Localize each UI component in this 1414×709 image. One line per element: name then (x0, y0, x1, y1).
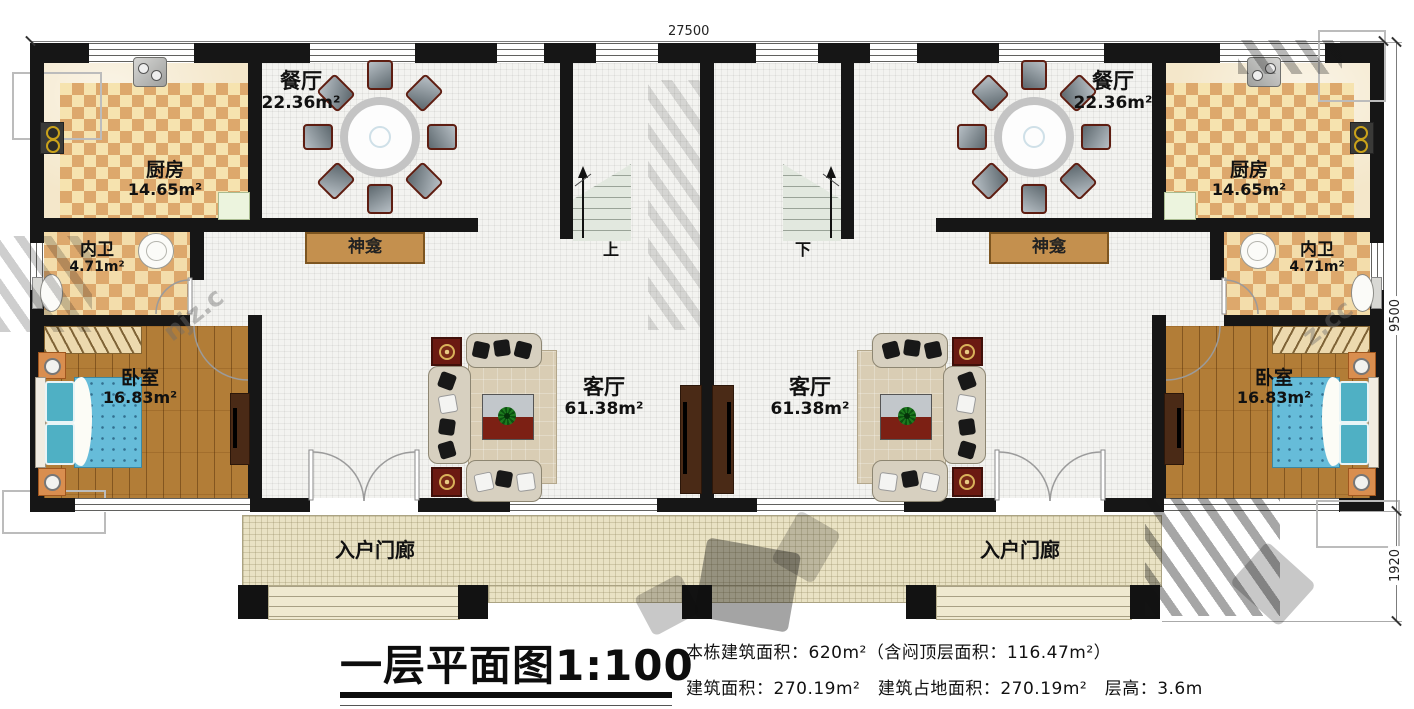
shrine-label: 神龛 (348, 238, 382, 257)
bed-headboard (1368, 377, 1379, 468)
dim-ext (1162, 621, 1402, 622)
porch-label-right: 入户门廊 (950, 534, 1090, 563)
dining-window (310, 43, 415, 63)
top-wall (194, 43, 310, 63)
bedroom-window (1164, 498, 1339, 512)
nightstand (38, 468, 66, 496)
room-label-bath: 内卫4.71m² (1267, 241, 1367, 276)
top-wall (917, 43, 999, 63)
bath-side-wall (1210, 232, 1224, 280)
dining-table (340, 97, 420, 177)
dim-top-value: 27500 (665, 24, 712, 39)
shrine-label: 神龛 (1032, 238, 1066, 257)
side-table (952, 337, 983, 366)
stair-wall (560, 43, 573, 239)
nightstand (1348, 468, 1376, 496)
porch-column (238, 585, 268, 619)
bath-side-wall (190, 232, 204, 280)
sofa-bottom (872, 460, 948, 502)
building-info-line2: 建筑面积：270.19m² 建筑占地面积：270.19m² 层高：3.6m (686, 674, 1203, 699)
shrine: 神龛 (989, 232, 1109, 264)
side-table (952, 467, 983, 497)
porch-steps-right (936, 585, 1132, 620)
title-underline-thin (340, 705, 672, 706)
nightstand (38, 352, 66, 379)
top-wall (707, 43, 756, 63)
hall-window (870, 43, 917, 63)
living-tv (727, 402, 731, 474)
side-table (431, 467, 462, 497)
bottom-wall (250, 498, 310, 512)
side-table (431, 337, 462, 366)
nightstand (1348, 352, 1376, 379)
bedroom-tv-cabinet (1164, 393, 1184, 465)
bottom-wall (707, 498, 757, 512)
dim-right-main-value: 9500 (1388, 296, 1403, 335)
top-wall (1104, 43, 1220, 63)
sofa-bottom (466, 460, 542, 502)
mid-wall (30, 218, 478, 232)
kitchen-sink (1247, 57, 1281, 87)
dim-ext (1340, 511, 1402, 512)
sofa-side (943, 366, 986, 464)
bottom-wall (1104, 498, 1164, 512)
bed-pillow (45, 423, 75, 465)
dim-right-porch-value: 1920 (1388, 546, 1403, 585)
room-label-living: 客厅61.38m² (760, 376, 860, 419)
dining-chair (1021, 60, 1047, 90)
title-underline (340, 692, 672, 698)
dining-chair (1081, 124, 1111, 150)
porch-column (906, 585, 936, 619)
stove (1350, 122, 1374, 154)
bedroom-top-wall (30, 315, 190, 326)
bottom-wall (657, 498, 707, 512)
dining-chair (427, 124, 457, 150)
stair-window (756, 43, 818, 63)
bedroom-tv (1177, 408, 1181, 448)
porch-column (458, 585, 488, 619)
bed-pillow (1339, 423, 1369, 465)
sofa-top (872, 333, 948, 368)
fridge (218, 192, 250, 220)
dining-chair (367, 184, 393, 214)
plant (498, 407, 516, 425)
dining-table (994, 97, 1074, 177)
stair-label: 下 (788, 241, 818, 259)
room-label-bath: 内卫4.71m² (47, 241, 147, 276)
room-label-dining: 餐厅22.36m² (1063, 70, 1163, 113)
living-tv (683, 402, 687, 474)
dining-chair (957, 124, 987, 150)
sofa-top (466, 333, 542, 368)
sofa-side (428, 366, 471, 464)
bed-pillow (45, 381, 75, 423)
top-wall (415, 43, 497, 63)
shrine: 神龛 (305, 232, 425, 264)
room-label-bedroom: 卧室16.83m² (90, 368, 190, 407)
mid-wall (936, 218, 1384, 232)
toilet (40, 274, 63, 312)
corner-bracket (2, 490, 106, 534)
drawing-title: 一层平面图1:100 (340, 632, 694, 693)
stair-wall (841, 43, 854, 239)
fridge (1164, 192, 1196, 220)
wardrobe (1272, 326, 1370, 354)
bedroom-tv (233, 408, 237, 448)
kitchen-sink (133, 57, 167, 87)
dim-ext (1340, 42, 1402, 43)
room-label-bedroom: 卧室16.83m² (1224, 368, 1324, 407)
hall-window (497, 43, 544, 63)
dining-chair (1021, 184, 1047, 214)
room-label-living: 客厅61.38m² (554, 376, 654, 419)
bed-pillow (1339, 381, 1369, 423)
dining-window (999, 43, 1104, 63)
room-label-kitchen: 厨房14.65m² (1199, 160, 1299, 199)
porch-label-left: 入户门廊 (305, 534, 445, 563)
dim-line-top (30, 41, 1384, 42)
porch-steps-left (268, 585, 460, 620)
dim-line-right-main (1396, 43, 1397, 512)
stove (40, 122, 64, 154)
corner-bracket (1316, 500, 1400, 548)
bedroom-top-wall (1224, 315, 1384, 326)
stair-label: 上 (596, 241, 626, 259)
plant (898, 407, 916, 425)
room-label-kitchen: 厨房14.65m² (115, 160, 215, 199)
porch-column (1130, 585, 1160, 619)
bedroom-side-wall (248, 315, 262, 498)
dining-chair (367, 60, 393, 90)
toilet (1351, 274, 1374, 312)
stair-window (596, 43, 658, 63)
wardrobe (44, 326, 142, 354)
bedroom-window (75, 498, 250, 512)
dining-chair (303, 124, 333, 150)
room-label-dining: 餐厅22.36m² (251, 70, 351, 113)
bottom-wall (30, 498, 75, 512)
building-info-line1: 本栋建筑面积：620m²（含闷顶层面积：116.47m²） (686, 638, 1111, 663)
floor-plan-canvas: 神龛 (0, 0, 1414, 709)
porch-column (682, 585, 712, 619)
